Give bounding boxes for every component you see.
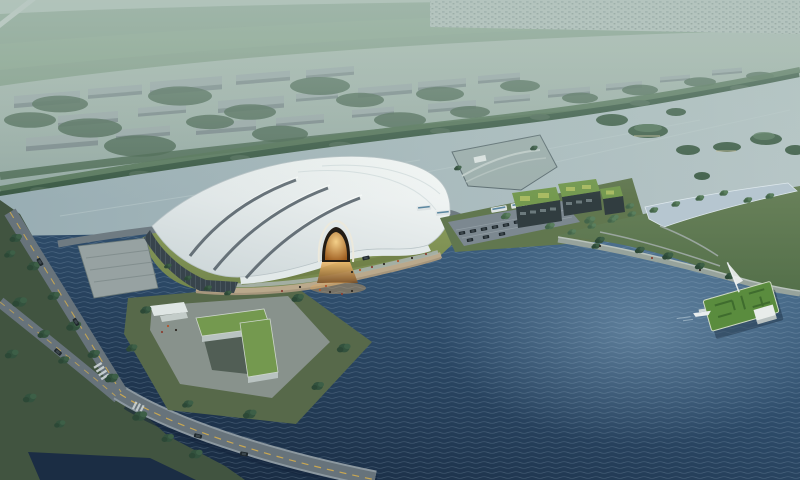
rendering-canvas — [0, 0, 800, 480]
entrance-light-pool — [310, 282, 366, 294]
aerial-rendering — [0, 0, 800, 480]
haze-overlay — [0, 0, 800, 200]
